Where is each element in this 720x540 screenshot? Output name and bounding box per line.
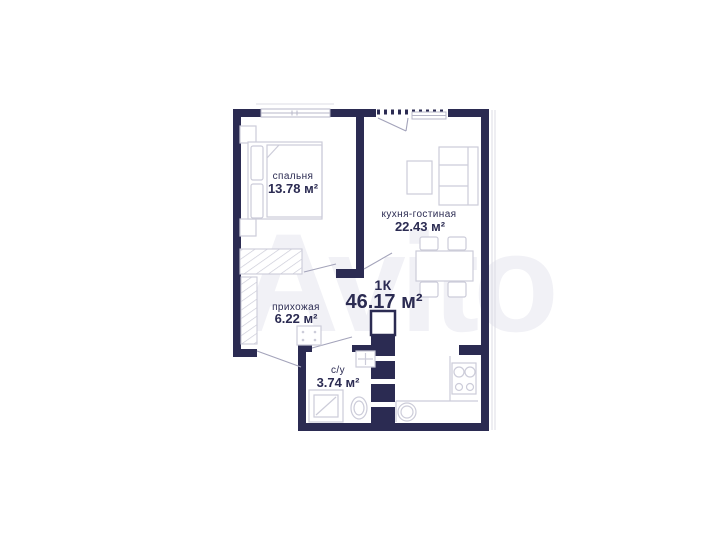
hall-closet-icon xyxy=(241,277,257,344)
chair-icon xyxy=(448,282,466,297)
coffee-table-icon xyxy=(407,161,432,194)
chair-icon xyxy=(448,237,466,250)
stove-icon xyxy=(452,363,476,394)
bath-sink-icon xyxy=(356,351,375,367)
balcony-door-icon xyxy=(377,112,447,131)
chair-icon xyxy=(420,282,438,297)
chair-icon xyxy=(420,237,438,250)
bedroom-area: 13.78 м² xyxy=(268,181,319,196)
floor-plan-canvas: Avito xyxy=(0,0,720,540)
shower-icon xyxy=(309,390,343,422)
kitchen-living-area: 22.43 м² xyxy=(395,219,446,234)
room-label-bathroom: с/у 3.74 м² xyxy=(317,365,361,390)
kitchen-sink-icon xyxy=(398,403,416,421)
hallway-area: 6.22 м² xyxy=(275,311,319,326)
floor-plan: Avito xyxy=(0,0,720,540)
wardrobe-icon xyxy=(240,249,302,274)
sofa-icon xyxy=(439,147,478,205)
unit-total-area: 46.17 м² xyxy=(345,291,422,313)
bedroom-window-icon xyxy=(261,109,330,117)
bathroom-area: 3.74 м² xyxy=(317,375,361,390)
room-label-hallway: прихожая 6.22 м² xyxy=(272,302,320,326)
room-label-bedroom: спальня 13.78 м² xyxy=(268,171,319,196)
washing-machine-icon xyxy=(297,326,321,345)
toilet-icon xyxy=(351,397,367,419)
